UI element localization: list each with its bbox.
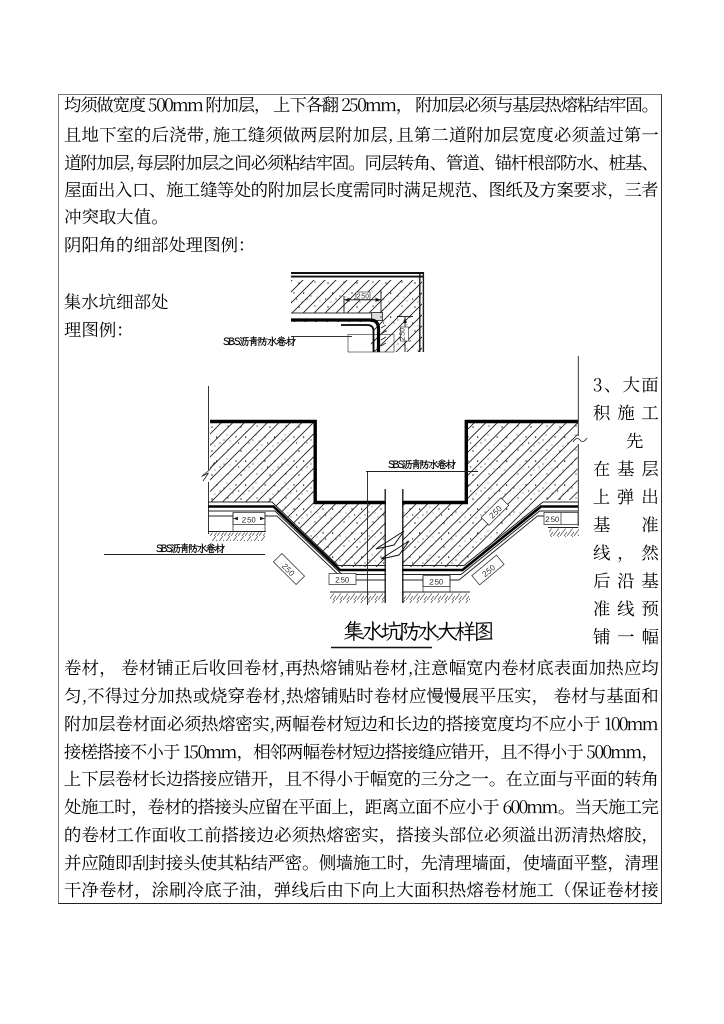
svg-text:集水坑防水大样图: 集水坑防水大样图 xyxy=(343,617,495,646)
svg-text:250: 250 xyxy=(357,292,370,301)
svg-text:250: 250 xyxy=(545,515,559,525)
svg-text:250: 250 xyxy=(335,576,349,586)
svg-text:SBS沥青防水卷材: SBS沥青防水卷材 xyxy=(156,541,226,555)
svg-text:250: 250 xyxy=(242,516,256,526)
svg-text:SBS沥青防水卷材: SBS沥青防水卷材 xyxy=(388,457,457,471)
svg-text:250: 250 xyxy=(429,578,443,588)
svg-text:SBS沥青防水卷材: SBS沥青防水卷材 xyxy=(223,334,297,348)
svg-text:250: 250 xyxy=(398,328,407,341)
